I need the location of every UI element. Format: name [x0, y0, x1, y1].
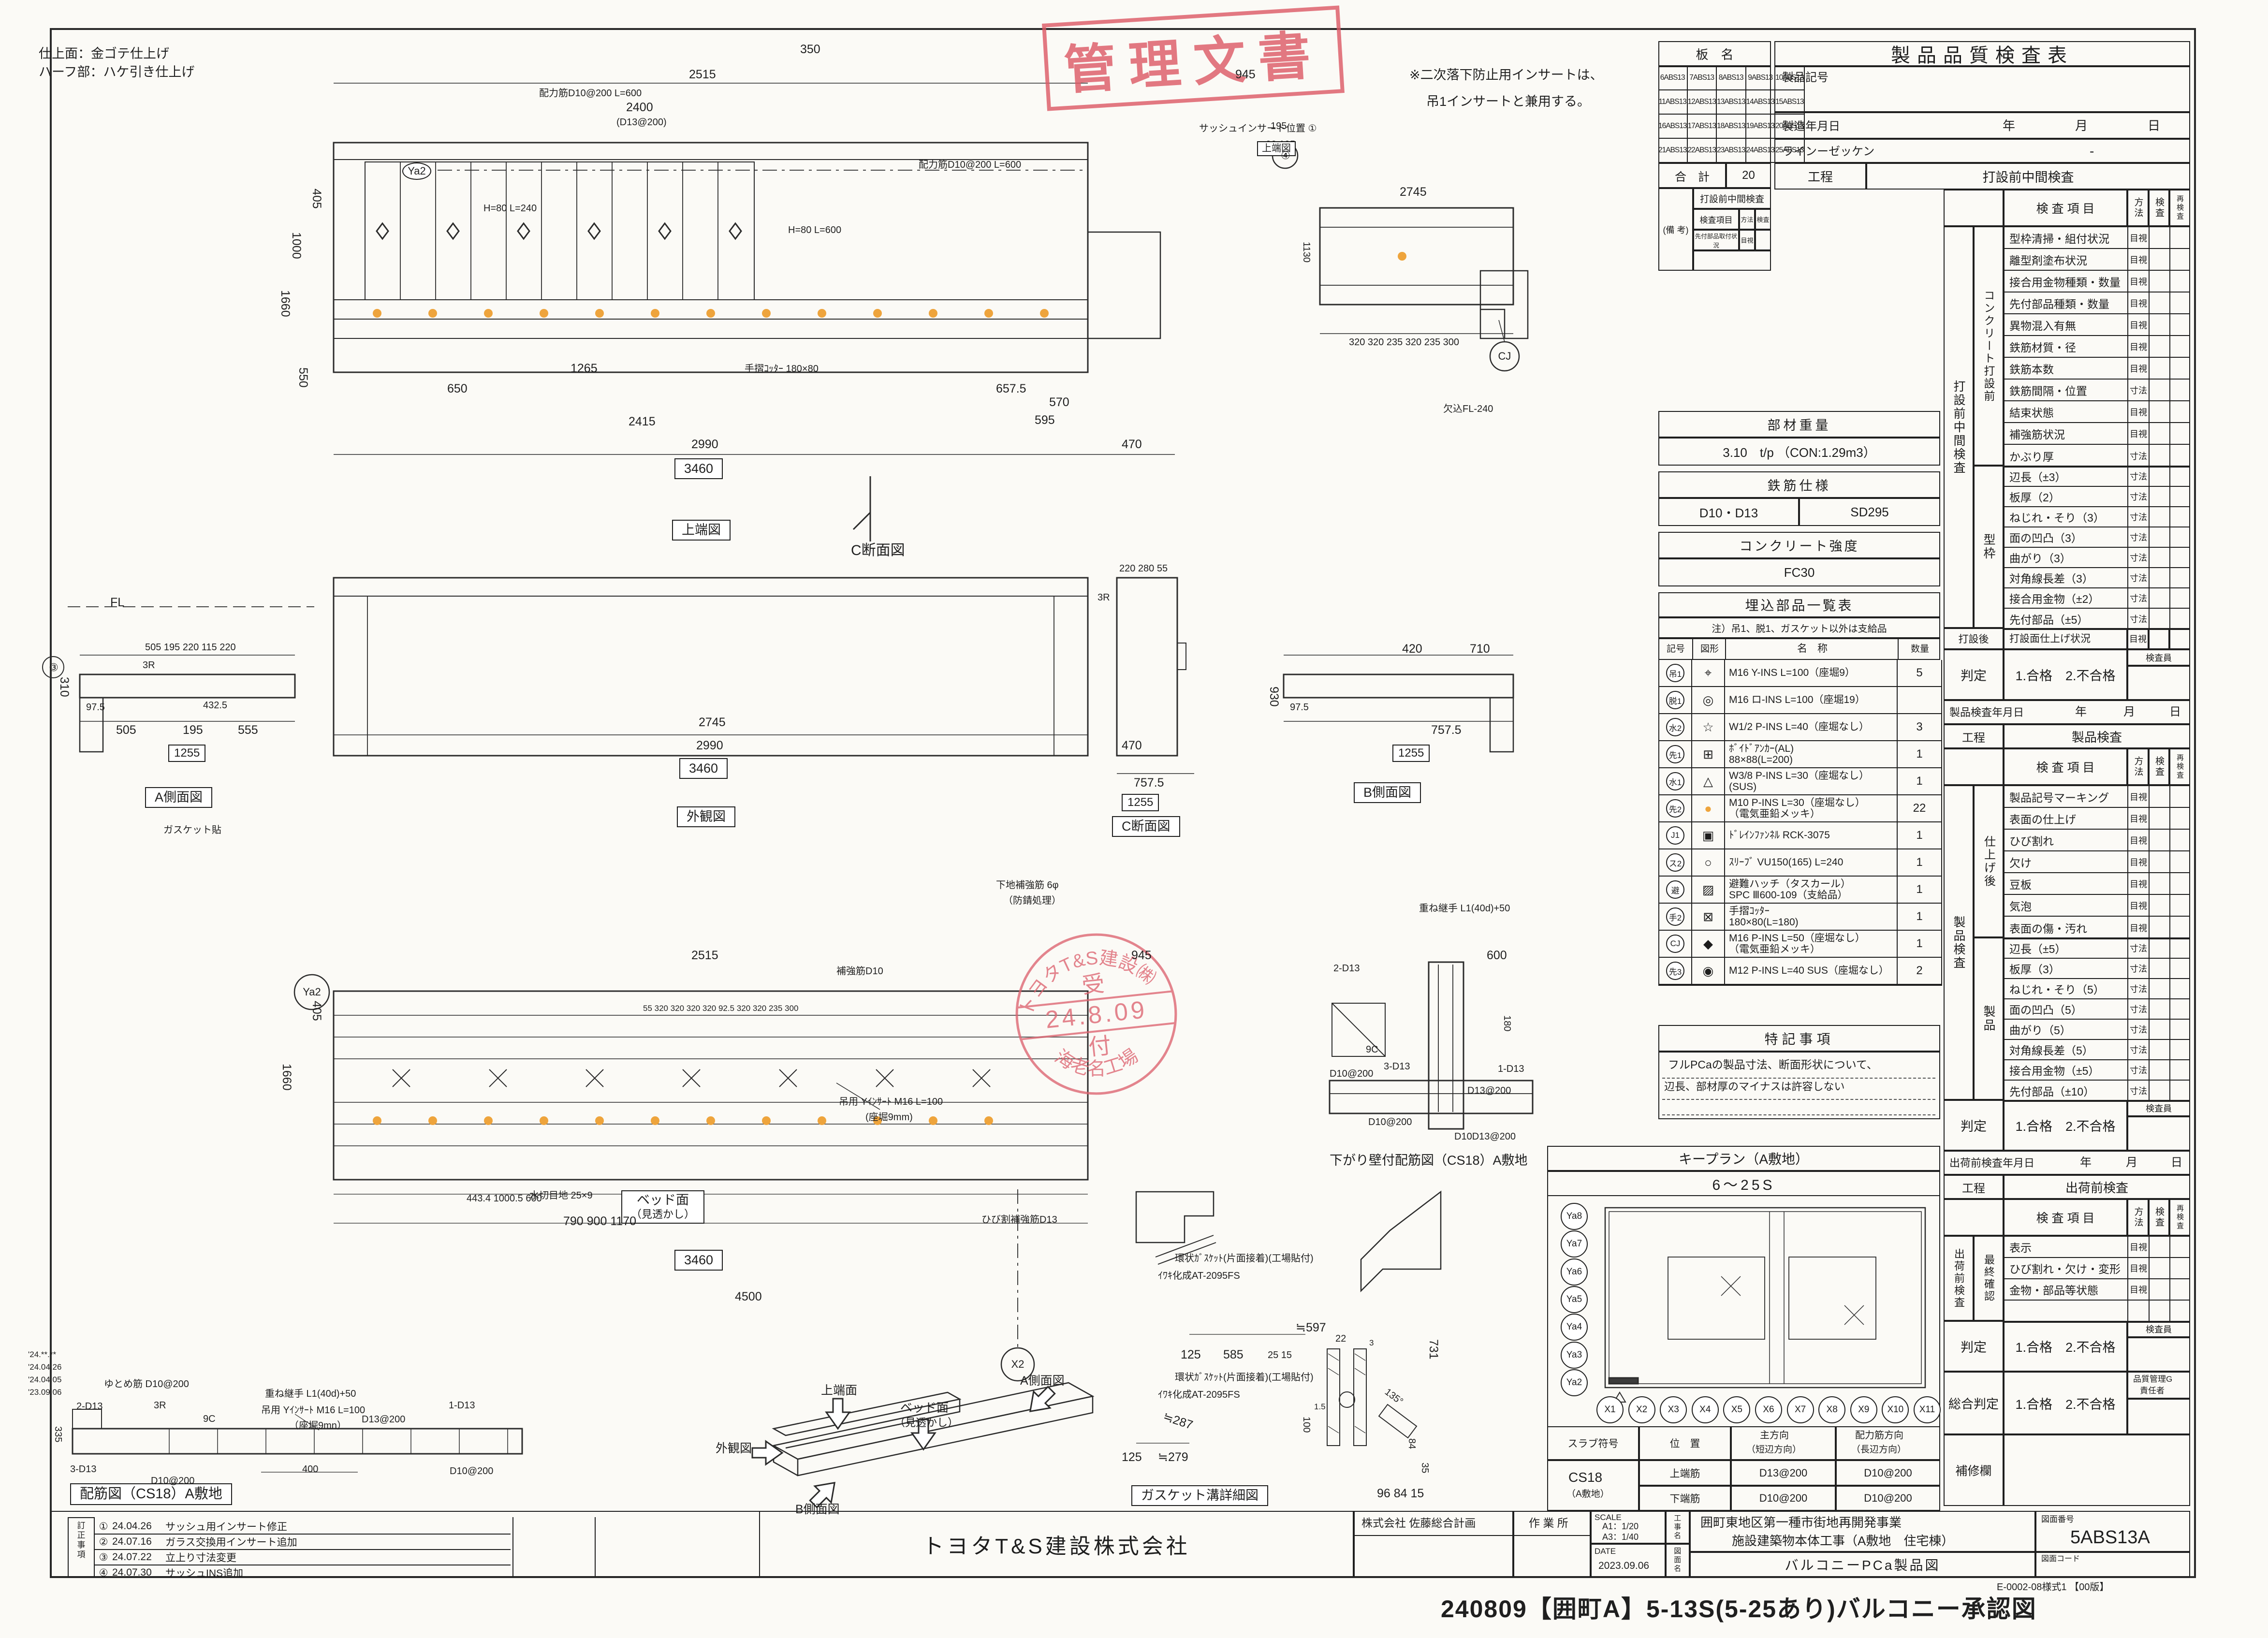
panel-name: 23ABS13 — [1717, 139, 1746, 163]
qc-method: 寸法 — [2128, 380, 2150, 400]
tokki-body: フルPCaの製品寸法、断面形状について、 辺長、部材厚のマイナスは許容しない — [1658, 1052, 1940, 1119]
qc-recheck-cell — [2170, 527, 2189, 547]
qc-s3-inspector-box — [2127, 1337, 2190, 1372]
part-symbol-icon: ▨ — [1692, 877, 1725, 903]
qc-head-method: 方法 — [2127, 190, 2149, 226]
qc-method: 寸法 — [2128, 938, 2150, 958]
qc-check-cell — [2150, 808, 2170, 829]
qc-s3-judge-value: 1.合格 2.不合格 — [2004, 1321, 2127, 1372]
qc-item: 曲がり（5） — [2005, 1020, 2128, 1039]
dim: 470 — [1122, 739, 1142, 753]
revision-no: ③ — [95, 1551, 112, 1564]
dim: 1.5 — [1314, 1402, 1326, 1412]
qc-recheck-cell — [2170, 568, 2189, 587]
dim: 400 — [302, 1464, 318, 1475]
qc-row: ねじれ・そり（5）寸法 — [2005, 979, 2189, 999]
qc-head-item: 検 査 項 目 — [2004, 748, 2127, 785]
parts-row: 手2 ⊠ 手摺ｺｯﾀｰ180×80(L=180) 1 — [1659, 904, 1941, 931]
date-note: '24.04.26 — [28, 1362, 61, 1372]
part-qty: 1 — [1898, 931, 1941, 957]
slab-r1-sub: D10@200 — [1836, 1460, 1940, 1486]
qc-check-cell — [2150, 380, 2170, 400]
part-code: CJ — [1659, 931, 1692, 957]
parts-row: 先2 ● M10 P-INS L=30（座堀なし）（電気亜鉛メッキ） 22 — [1659, 795, 1941, 822]
qc-method: 寸法 — [2128, 527, 2150, 547]
qc-item: 豆板 — [2005, 873, 2128, 894]
qc-recheck-cell — [2170, 487, 2189, 506]
qc-check-cell — [2150, 873, 2170, 894]
date-note: '24.04.05 — [28, 1375, 61, 1385]
qc-row: 板厚（3）寸法 — [2005, 959, 2189, 979]
rebar-title: 鉄筋仕様 — [1658, 471, 1940, 498]
drawing-sheet: { "sheet":{"footer_note":"E-0002-08様式1 【… — [0, 0, 2268, 1638]
dim: 25 15 — [1268, 1350, 1292, 1361]
part-qty: 22 — [1898, 795, 1941, 821]
note: 環状ｶﾞｽｹｯﾄ(片面接着)(工場貼付) — [1175, 1253, 1314, 1264]
leader-note: （座堀9mn） — [289, 1420, 347, 1432]
part-symbol-icon: ▣ — [1692, 822, 1725, 848]
divider — [1514, 1535, 1592, 1536]
slab-h2: 位 置 — [1639, 1426, 1731, 1460]
qc-method: 目視 — [2128, 830, 2150, 850]
part-symbol-icon: ⊠ — [1692, 904, 1725, 930]
qc-post-item: 打設面仕上げ状況 — [2004, 628, 2127, 649]
panel-name: 17ABS13 — [1688, 115, 1717, 139]
dim: 125 — [1122, 1450, 1142, 1464]
qc-recheck-cell — [2170, 507, 2189, 526]
panel-name: 18ABS13 — [1717, 115, 1746, 139]
revision-date: 24.07.22 — [112, 1551, 165, 1563]
dim: 100 — [1301, 1417, 1312, 1433]
iso-label: 外観図 — [716, 1442, 752, 1456]
day-label: 日 — [2171, 1156, 2182, 1170]
qc-item: 打設面仕上げ状況 — [2009, 633, 2091, 645]
part-name: W1/2 P-INS L=40（座堀なし） — [1725, 714, 1898, 740]
qc-recheck-cell — [2170, 588, 2189, 608]
qc-method: 寸法 — [2128, 979, 2150, 998]
part-code: 水2 — [1659, 714, 1692, 740]
qc-row: 表面の傷・汚れ目視 — [2005, 917, 2189, 938]
dim: 470 — [1122, 438, 1142, 452]
part-code: J1 — [1659, 822, 1692, 848]
leader-note: 欠込FL-240 — [1443, 404, 1493, 415]
qc-check-cell — [2150, 830, 2170, 850]
qc-s2-g1-label: 仕上げ後 — [1974, 785, 2004, 937]
qc-item: 補強筋状況 — [2005, 423, 2128, 444]
divider — [1355, 1535, 1514, 1536]
dim: 9C — [1366, 1044, 1378, 1055]
dim: 3R — [143, 660, 155, 671]
qc-item: 欠け — [2005, 851, 2128, 872]
site-label: 作 業 所 — [1529, 1517, 1568, 1529]
qc-method — [2128, 1301, 2150, 1322]
qc-recheck-cell — [2170, 851, 2189, 872]
architect-cell: 株式会社 佐藤総合計画 — [1354, 1511, 1513, 1577]
qc-row: 表示目視 — [2005, 1237, 2189, 1258]
day-label: 日 — [2148, 119, 2160, 133]
dim: 220 280 55 — [1119, 563, 1168, 574]
weight-value: 3.10 t/p （CON:1.29m3） — [1658, 438, 1940, 466]
qc-recheck-cell — [2170, 979, 2189, 998]
qc-s1-g2-rows: 辺長（±3）寸法板厚（2）寸法ねじれ・そり（3）寸法面の凹凸（3）寸法曲がり（3… — [2004, 466, 2190, 630]
remark-h-check: 検査 — [1755, 209, 1771, 230]
grid-bubble: Ya3 — [1561, 1342, 1588, 1369]
grid-bubble: X2 — [1628, 1396, 1655, 1423]
qc-s2-stage-label: 工程 — [1944, 724, 2004, 748]
qc-recheck-cell — [2170, 336, 2189, 357]
qc-method: 目視 — [2128, 873, 2150, 894]
qc-check-cell — [2150, 292, 2170, 313]
qc-s3-date-label: 出荷前検査年月日 — [1949, 1157, 2034, 1169]
qc-item: かぶり厚 — [2005, 445, 2128, 467]
qc-method: 寸法 — [2128, 1040, 2150, 1059]
qc-item: 離型剤塗布状況 — [2005, 249, 2128, 270]
qc-item: 接合用金物（±5） — [2005, 1060, 2128, 1080]
qc-row: 接合用金物種類・数量目視 — [2005, 271, 2189, 292]
dim: 405 — [309, 1001, 323, 1021]
qc-s1-judge-value: 1.合格 2.不合格 — [2004, 649, 2127, 700]
tokki-line2: 辺長、部材厚のマイナスは許容しない — [1664, 1081, 1845, 1093]
qc-repair-label: 補修欄 — [1944, 1434, 2004, 1506]
dim: 2-D13 — [1333, 963, 1360, 974]
remark-item: 先付部品取付状況 — [1693, 230, 1739, 250]
qc-row: 豆板目視 — [2005, 873, 2189, 895]
dim: 1660 — [278, 290, 292, 317]
dim-boxed: 1255 — [1122, 794, 1159, 811]
view-label: 上端図 — [672, 520, 731, 541]
revision-row: ④ 24.07.30 サッシュINS追加 — [95, 1565, 511, 1580]
part-code: 先1 — [1659, 741, 1692, 767]
revision-date: 24.04.26 — [112, 1521, 165, 1532]
dim: 1660 — [279, 1064, 293, 1091]
qc-item: 鉄筋材質・径 — [2005, 336, 2128, 357]
project-cell: 囲町東地区第一種市街地再開発事業 施設建築物本体工事（A敷地 住宅棟） — [1690, 1511, 2035, 1552]
qc-row: 離型剤塗布状況目視 — [2005, 249, 2189, 271]
qc-s1-g1-label: コンクリート打設前 — [1974, 226, 2004, 466]
part-qty: 1 — [1898, 768, 1941, 794]
year-label: 年 — [2075, 705, 2087, 719]
qc-s3-stage-value: 出荷前検査 — [2004, 1175, 2190, 1199]
month-label: 月 — [2075, 119, 2088, 133]
panel-name: 13ABS13 — [1717, 90, 1746, 115]
slab-r2-main: D10@200 — [1731, 1486, 1836, 1511]
qc-check-cell — [2150, 1081, 2170, 1101]
part-qty: 1 — [1898, 904, 1941, 930]
dim: 1130 — [1301, 242, 1312, 263]
part-name: M10 P-INS L=30（座堀なし）（電気亜鉛メッキ） — [1725, 795, 1898, 821]
dim: 570 — [1049, 395, 1069, 409]
qc-method: 目視 — [2128, 227, 2150, 248]
tokki-line1: フルPCaの製品寸法、断面形状について、 — [1668, 1058, 1878, 1071]
dim: 125 — [1181, 1348, 1201, 1362]
part-qty: 2 — [1898, 958, 1941, 984]
qc-s3-g1-rows: 表示目視ひび割れ・欠け・変形目視金物・部品等状態目視 — [2004, 1236, 2190, 1323]
qc-head-method: 方法 — [2127, 1199, 2149, 1236]
qc-item: 結束状態 — [2005, 401, 2128, 422]
qc-row: 金物・部品等状態目視 — [2005, 1279, 2189, 1301]
qc-method: 寸法 — [2128, 588, 2150, 608]
qc-s3-stage-label: 工程 — [1944, 1175, 2004, 1199]
qc-row: ひび割れ目視 — [2005, 830, 2189, 851]
grid-bubble: Ya4 — [1561, 1314, 1588, 1341]
grid-bubble: X4 — [1692, 1396, 1719, 1423]
qc-row: 対角線長差（5）寸法 — [2005, 1040, 2189, 1060]
grid-bubble: Ya2 — [402, 162, 431, 180]
part-symbol-icon: ○ — [1692, 849, 1725, 876]
dim: 2745 — [1400, 185, 1427, 199]
scale-label: SCALE — [1595, 1513, 1622, 1522]
parts-h-name: 名 称 — [1725, 639, 1899, 659]
dashed-rule — [1662, 1099, 1935, 1100]
contractor-name: トヨタT&S建設株式会社 — [759, 1511, 1354, 1577]
qc-s1-judge-label: 判定 — [1944, 649, 2004, 700]
panel-name: 21ABS13 — [1658, 139, 1688, 163]
qc-method: 目視 — [2128, 1237, 2150, 1257]
grid-bubble: X9 — [1850, 1396, 1877, 1423]
qc-check-cell — [2150, 358, 2170, 379]
parts-row: CJ ◆ M16 P-INS L=50（座堀なし）（電気亜鉛メッキ） 1 — [1659, 931, 1941, 958]
keyplan-title: キープラン（A敷地） — [1547, 1146, 1940, 1171]
qc-s3-head-spacer — [1944, 1199, 2004, 1236]
qc-check-cell — [2150, 1301, 2170, 1322]
part-code: 避 — [1659, 877, 1692, 903]
grid-bubble: X5 — [1723, 1396, 1750, 1423]
dim: 550 — [296, 367, 310, 388]
panel-name: 7ABS13 — [1688, 66, 1717, 90]
qc-recheck-cell — [2170, 609, 2189, 629]
approver-line2: 責任者 — [2140, 1386, 2165, 1396]
qc-row: 異物混入有無目視 — [2005, 314, 2189, 336]
qc-s3-inspector-label: 検査員 — [2127, 1321, 2190, 1337]
qc-item: 気泡 — [2005, 895, 2128, 916]
qc-item: ひび割れ — [2005, 830, 2128, 850]
qc-head-recheck: 再検査 — [2169, 1199, 2190, 1236]
qc-method: 寸法 — [2128, 548, 2150, 567]
note: ガスケット貼 — [163, 825, 221, 836]
qc-row: 先付部品（±5）寸法 — [2005, 609, 2189, 629]
qc-s2-head-spacer — [1944, 748, 2004, 785]
dim: 2-D13 — [76, 1401, 102, 1412]
qc-stage-value: 打設前中間検査 — [1866, 163, 2190, 190]
dim: 1-D13 — [1498, 1064, 1524, 1075]
qc-recheck-cell — [2170, 314, 2189, 335]
note: 環状ｶﾞｽｹｯﾄ(片面接着)(工場貼付) — [1175, 1372, 1314, 1383]
leader-note: 補強筋D10 — [836, 966, 883, 977]
concrete-title: コンクリート強度 — [1658, 532, 1940, 558]
qc-check-cell — [2149, 628, 2169, 649]
finish-note-1: 仕上面：金ゴテ仕上げ — [39, 46, 169, 61]
panel-name: 24ABS13 — [1746, 139, 1776, 163]
revision-desc: 立上り寸法変更 — [165, 1550, 511, 1565]
dim: 945 — [1235, 68, 1256, 82]
form-code: E-0002-08様式1 【00版】 — [1997, 1582, 2109, 1593]
qc-head-method: 方法 — [2127, 748, 2149, 785]
view-label: ガスケット溝詳細図 — [1131, 1485, 1268, 1506]
dim: 195 — [183, 723, 203, 737]
grid-bubble-label: Ya2 — [299, 984, 325, 1000]
qc-s1-inspector-label: 検査員 — [2127, 649, 2190, 666]
dim: 405 — [309, 189, 323, 209]
qc-item: 鉄筋間隔・位置 — [2005, 380, 2128, 400]
qc-item: 先付部品（±5） — [2005, 609, 2128, 629]
panel-name: 11ABS13 — [1658, 90, 1688, 115]
qc-head-recheck: 再検査 — [2169, 748, 2190, 785]
dim: 2415 — [629, 415, 656, 429]
revision-row: ③ 24.07.22 立上り寸法変更 — [95, 1550, 511, 1565]
leader-note: ひび割補強筋D13 — [981, 1214, 1057, 1226]
slab-r2-pos: 下端筋 — [1639, 1486, 1731, 1511]
qc-method: 目視 — [2128, 314, 2150, 335]
dashed-rule — [1662, 1078, 1935, 1079]
slab-r1-main: D13@200 — [1731, 1460, 1836, 1486]
qc-check-cell — [2150, 588, 2170, 608]
level-label: FL — [110, 596, 124, 610]
qc-post-label: 打設後 — [1944, 628, 2004, 649]
qc-recheck-cell — [2170, 423, 2189, 444]
remark-h-item: 検査項目 — [1693, 209, 1739, 230]
qc-check-cell — [2150, 249, 2170, 270]
dim: D10D13@200 — [1454, 1131, 1516, 1142]
slab-r1-pos: 上端筋 — [1639, 1460, 1731, 1486]
qc-head-check: 検査 — [2149, 190, 2169, 226]
parts-row: 脱1 ◎ M16 ロ-INS L=100（座堀19） — [1659, 687, 1941, 714]
part-qty: 1 — [1898, 741, 1941, 767]
slab-r2-sub: D10@200 — [1836, 1486, 1940, 1511]
qc-recheck-cell — [2170, 999, 2189, 1019]
dim: D10@200 — [1368, 1117, 1412, 1128]
grid-bubble-label: CJ — [1495, 349, 1514, 364]
parts-h-sym: 図形 — [1692, 639, 1726, 659]
parts-row: 水1 △ W3/8 P-INS L=30（座堀なし）(SUS) 1 — [1659, 768, 1941, 795]
qc-check-cell — [2150, 979, 2170, 998]
keyplan-range: 6～25S — [1547, 1171, 1940, 1196]
qc-check-cell — [2150, 959, 2170, 978]
project-line1: 囲町東地区第一種市街地再開発事業 — [1700, 1516, 1902, 1530]
qc-approver-label: 品質管理G 責任者 — [2127, 1372, 2190, 1399]
qc-item: 型枠清掃・組付状況 — [2005, 227, 2128, 248]
dim: 4500 — [735, 1290, 762, 1304]
part-name: ﾎﾞｲﾄﾞｱﾝｶｰ(AL)88×88(L=200) — [1725, 741, 1898, 767]
month-label: 月 — [2126, 1156, 2137, 1170]
qc-method: 目視 — [2128, 786, 2150, 807]
dim: D13@200 — [1467, 1085, 1511, 1097]
parts-rows: 吊1 ⌖ M16 Y-INS L=100（座堀9） 5 脱1 ◎ M16 ロ-I… — [1658, 660, 1942, 986]
qc-recheck-cell — [2170, 271, 2189, 292]
part-name: W3/8 P-INS L=30（座堀なし）(SUS) — [1725, 768, 1898, 794]
remark-stage: 打設前中間検査 — [1693, 188, 1771, 209]
grid-bubble: X3 — [1660, 1396, 1687, 1423]
qc-check-cell — [2150, 548, 2170, 567]
part-code: 先3 — [1659, 958, 1692, 984]
qc-s3-date-cell: 出荷前検査年月日 年 月 日 — [1944, 1151, 2190, 1175]
dim: 3R — [1097, 592, 1110, 603]
parts-row: 先3 ◉ M12 P-INS L=40 SUS（座堀なし） 2 — [1659, 958, 1941, 985]
qc-check-cell — [2150, 568, 2170, 587]
qc-method: 目視 — [2128, 808, 2150, 829]
qc-recheck-cell — [2170, 1279, 2189, 1300]
leader-note: 手摺ｺｯﾀｰ 180×80 — [745, 364, 819, 375]
qc-row: 鉄筋間隔・位置寸法 — [2005, 380, 2189, 401]
qc-row: 補強筋状況目視 — [2005, 423, 2189, 445]
ban-mei-total: 20 — [1726, 163, 1771, 188]
qc-s2-inspector-box — [2127, 1116, 2190, 1151]
qc-recheck-cell — [2170, 467, 2189, 486]
qc-method: 目視 — [2128, 249, 2150, 270]
qc-item: 鉄筋本数 — [2005, 358, 2128, 379]
keyplan-ya-bubbles: Ya8Ya7Ya6Ya5Ya4Ya3Ya2 — [1561, 1203, 1588, 1396]
qc-repair-box — [2004, 1434, 2190, 1506]
dim: 555 — [238, 723, 258, 737]
qc-product-code-cell: 製品記号 — [1774, 66, 2190, 112]
panel-name: 12ABS13 — [1688, 90, 1717, 115]
qc-s2-date-label: 製品検査年月日 — [1949, 706, 2024, 718]
qc-s1-vlabel: 打設前中間検査 — [1944, 226, 1974, 628]
dim: 97.5 — [86, 702, 105, 713]
qc-check-cell — [2150, 917, 2170, 938]
part-symbol-icon: ◆ — [1692, 931, 1725, 957]
qc-row: 鉄筋本数目視 — [2005, 358, 2189, 380]
part-symbol-icon: ◎ — [1692, 687, 1725, 713]
qc-row: 接合用金物（±2）寸法 — [2005, 588, 2189, 609]
dim: 335 — [52, 1426, 63, 1442]
grid-bubble: Ya5 — [1561, 1286, 1588, 1313]
qc-s2-g1-rows: 製品記号マーキング目視表面の仕上げ目視ひび割れ目視欠け目視豆板目視気泡目視表面の… — [2004, 785, 2190, 939]
qc-check-cell — [2150, 527, 2170, 547]
revision-rows: ① 24.04.26 サッシュ用インサート修正 ② 24.07.16 ガラス交換… — [95, 1519, 511, 1580]
qc-stage-label: 工程 — [1774, 163, 1866, 190]
part-code: 脱1 — [1659, 687, 1692, 713]
weight-title: 部材重量 — [1658, 411, 1940, 438]
panel-name: 8ABS13 — [1717, 66, 1746, 90]
qc-item: 面の凹凸（5） — [2005, 999, 2128, 1019]
qc-item: 辺長（±3） — [2005, 467, 2128, 486]
keyplan-x-bubbles: X1X2X3X4X5X6X7X8X9X10X11 — [1596, 1396, 1941, 1423]
qc-method: 寸法 — [2128, 507, 2150, 526]
divider — [512, 1517, 513, 1577]
architect-name: 株式会社 佐藤総合計画 — [1361, 1517, 1476, 1529]
grid-bubble: X1 — [1596, 1396, 1624, 1423]
leader-note: 重ね継手 L1(40d)+50 — [1419, 903, 1510, 914]
part-code: ス2 — [1659, 849, 1692, 876]
qc-item: 対角線長差（5） — [2005, 1040, 2128, 1059]
grid-bubble: Ya2 — [1561, 1369, 1588, 1396]
qc-method: 目視 — [2128, 292, 2150, 313]
note: ｲﾜｷ化成AT-2095FS — [1158, 1271, 1240, 1282]
qc-item: 接合用金物（±2） — [2005, 588, 2128, 608]
qc-row: 結束状態目視 — [2005, 401, 2189, 423]
leader-note: 重ね継手 L1(40d)+50 — [265, 1389, 356, 1400]
dim: D10@200 — [151, 1476, 194, 1487]
qc-method: 寸法 — [2128, 487, 2150, 506]
parts-row: ス2 ○ ｽﾘｰﾌﾞ VU150(165) L=240 1 — [1659, 849, 1941, 877]
leader-note: (座堀9mm) — [865, 1112, 913, 1123]
qc-item: 製品記号マーキング — [2005, 786, 2128, 807]
slab-site: （A敷地） — [1566, 1489, 1610, 1500]
grid-bubble: X10 — [1882, 1396, 1909, 1423]
dim: (D13@200) — [616, 117, 667, 128]
qc-method: 目視 — [2128, 917, 2150, 938]
grid-bubble: X6 — [1755, 1396, 1782, 1423]
qc-item: 辺長（±5） — [2005, 938, 2128, 958]
qc-recheck-cell — [2170, 959, 2189, 978]
qc-row: 曲がり（5）寸法 — [2005, 1020, 2189, 1040]
dashed-rule — [1662, 1114, 1935, 1115]
qc-check-cell — [2150, 609, 2170, 629]
part-code: 手2 — [1659, 904, 1692, 930]
dim: ≒279 — [1158, 1450, 1188, 1464]
date-note: '23.09.06 — [28, 1388, 61, 1397]
qc-method: 寸法 — [2128, 1060, 2150, 1080]
